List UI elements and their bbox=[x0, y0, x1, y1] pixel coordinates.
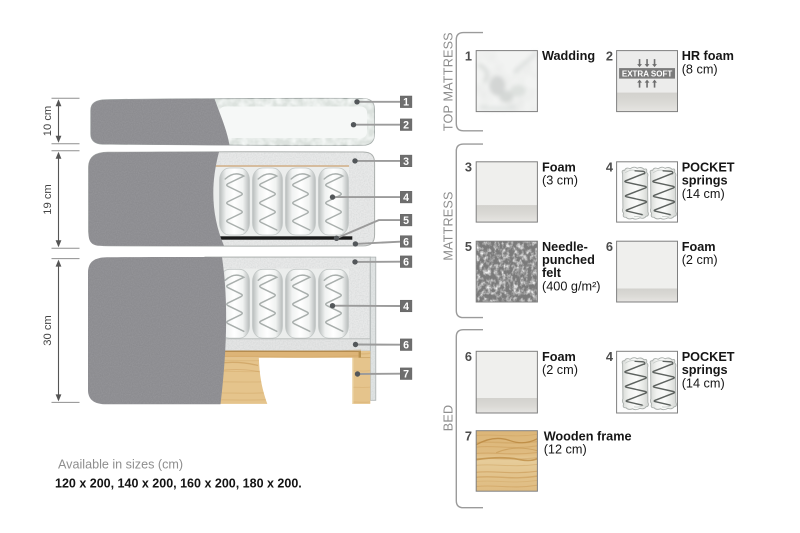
svg-text:6: 6 bbox=[403, 257, 409, 269]
svg-text:MATTRESS: MATTRESS bbox=[442, 191, 456, 260]
svg-text:5: 5 bbox=[403, 215, 409, 227]
svg-text:Foam: Foam bbox=[542, 350, 576, 364]
svg-text:1: 1 bbox=[403, 97, 409, 109]
svg-text:Available in sizes (cm): Available in sizes (cm) bbox=[58, 457, 183, 471]
svg-text:7: 7 bbox=[465, 429, 472, 444]
svg-text:punched: punched bbox=[542, 253, 595, 267]
svg-text:(400 g/m²): (400 g/m²) bbox=[542, 279, 601, 293]
svg-text:6: 6 bbox=[606, 239, 613, 254]
svg-text:Needle-: Needle- bbox=[542, 240, 588, 254]
svg-text:TOP MATTRESS: TOP MATTRESS bbox=[442, 32, 456, 131]
svg-text:(3 cm): (3 cm) bbox=[542, 174, 578, 188]
svg-text:felt: felt bbox=[542, 266, 562, 280]
svg-text:POCKET: POCKET bbox=[682, 350, 735, 364]
svg-text:(2 cm): (2 cm) bbox=[542, 363, 578, 377]
svg-text:2: 2 bbox=[403, 120, 409, 132]
svg-text:Wooden frame: Wooden frame bbox=[544, 429, 632, 443]
svg-text:BED: BED bbox=[442, 405, 456, 432]
svg-text:2: 2 bbox=[606, 48, 613, 63]
svg-text:HR foam: HR foam bbox=[682, 49, 734, 63]
svg-text:(14 cm): (14 cm) bbox=[682, 376, 725, 390]
svg-text:4: 4 bbox=[403, 301, 409, 313]
svg-text:7: 7 bbox=[403, 369, 409, 381]
svg-text:(8 cm): (8 cm) bbox=[682, 62, 718, 76]
svg-text:(12 cm): (12 cm) bbox=[544, 443, 587, 457]
svg-text:Foam: Foam bbox=[542, 160, 576, 174]
svg-text:10 cm: 10 cm bbox=[42, 106, 54, 136]
svg-text:3: 3 bbox=[465, 160, 472, 175]
svg-text:120 x 200, 140 x 200, 160 x 20: 120 x 200, 140 x 200, 160 x 200, 180 x 2… bbox=[55, 477, 302, 491]
svg-text:1: 1 bbox=[465, 48, 472, 63]
svg-text:6: 6 bbox=[403, 340, 409, 352]
svg-text:POCKET: POCKET bbox=[682, 160, 735, 174]
svg-text:springs: springs bbox=[682, 363, 728, 377]
svg-text:springs: springs bbox=[682, 174, 728, 188]
svg-text:6: 6 bbox=[465, 349, 472, 364]
svg-text:(14 cm): (14 cm) bbox=[682, 187, 725, 201]
svg-text:4: 4 bbox=[606, 349, 614, 364]
svg-text:19 cm: 19 cm bbox=[42, 184, 54, 214]
svg-text:Wadding: Wadding bbox=[542, 49, 595, 63]
svg-text:EXTRA SOFT: EXTRA SOFT bbox=[622, 70, 672, 79]
svg-text:4: 4 bbox=[403, 192, 409, 204]
svg-text:3: 3 bbox=[403, 156, 409, 168]
svg-text:30 cm: 30 cm bbox=[42, 315, 54, 345]
svg-text:5: 5 bbox=[465, 239, 472, 254]
svg-text:Foam: Foam bbox=[682, 240, 716, 254]
svg-text:4: 4 bbox=[606, 160, 614, 175]
svg-text:6: 6 bbox=[403, 236, 409, 248]
svg-text:(2 cm): (2 cm) bbox=[682, 253, 718, 267]
